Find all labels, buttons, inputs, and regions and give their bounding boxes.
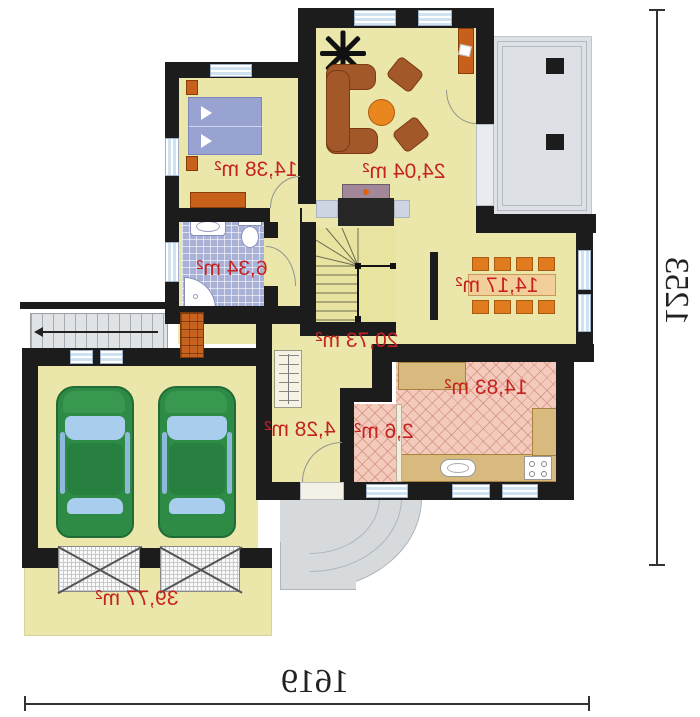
- terrace-door-gap: [476, 124, 494, 206]
- dining-chair: [516, 300, 533, 314]
- wall: [298, 8, 316, 204]
- area-label-pantry: 2,6 m²: [354, 420, 414, 444]
- window: [70, 350, 93, 364]
- area-label-entry: 4,28 m²: [264, 418, 335, 442]
- car: [56, 386, 134, 538]
- threshold: [316, 200, 338, 218]
- pillow: [201, 106, 212, 120]
- window: [165, 138, 179, 176]
- wall: [340, 388, 354, 492]
- toilet-bowl: [241, 226, 259, 248]
- bed: [188, 97, 262, 155]
- wall: [430, 252, 438, 320]
- wall: [140, 548, 160, 568]
- wall: [300, 222, 316, 336]
- stairs-direction-arrow: [40, 331, 158, 333]
- dimension-cap: [588, 696, 590, 711]
- area-label-bedroom: 14,38 m²: [215, 158, 298, 182]
- terrace-frame-inner: [502, 46, 582, 206]
- window: [100, 350, 123, 364]
- staircase: [316, 228, 396, 324]
- terrace-post: [546, 58, 564, 74]
- area-label-kitchen: 14,83 m²: [445, 376, 528, 400]
- fireplace-flame-icon: [363, 189, 369, 195]
- paper: [458, 44, 472, 57]
- wall: [256, 306, 272, 500]
- wall: [556, 356, 574, 488]
- threshold: [394, 200, 410, 218]
- wall: [22, 348, 38, 568]
- dimension-line-bottom: [25, 703, 590, 705]
- wall: [22, 348, 272, 366]
- car: [158, 386, 236, 538]
- window: [366, 484, 408, 498]
- door-gap: [270, 208, 300, 222]
- dining-chair: [538, 300, 555, 314]
- stove: [524, 456, 552, 480]
- kitchen-sink: [440, 459, 476, 477]
- wall: [238, 548, 272, 568]
- dimension-height: 1253: [657, 257, 695, 325]
- dresser: [190, 192, 246, 208]
- area-label-hall: 20,73 m²: [316, 329, 399, 353]
- dimension-cap: [649, 9, 665, 11]
- window: [165, 242, 179, 282]
- front-door-gap: [300, 482, 344, 500]
- dining-chair: [472, 257, 489, 271]
- wall: [298, 8, 494, 28]
- wardrobe: [274, 350, 302, 408]
- window: [578, 250, 591, 290]
- dining-chair: [494, 300, 511, 314]
- area-label-bath: 6,34 m²: [196, 257, 267, 281]
- chimney: [180, 312, 204, 358]
- window: [354, 10, 396, 26]
- wall: [165, 62, 179, 324]
- window: [578, 294, 591, 332]
- pillow: [201, 134, 212, 148]
- kitchen-counter: [532, 408, 558, 456]
- stairs-arrowhead: [34, 327, 43, 337]
- terrace-post: [546, 134, 564, 150]
- area-label-dining: 14,17 m²: [456, 274, 539, 298]
- dining-chair: [472, 300, 489, 314]
- window: [452, 484, 490, 498]
- dining-chair: [494, 257, 511, 271]
- wall: [22, 548, 58, 568]
- sofa: [326, 70, 350, 152]
- area-label-garage: 39,77 m²: [96, 587, 179, 611]
- floor-plan: 24,04 m² 14,38 m² 6,34 m² 14,17 m² 20,73…: [0, 0, 700, 717]
- garage-door: [58, 546, 140, 592]
- dining-chair: [516, 257, 533, 271]
- fireplace-hearth: [338, 198, 394, 226]
- garage-door: [160, 546, 240, 592]
- window: [418, 10, 452, 26]
- area-label-living: 24,04 m²: [363, 160, 446, 184]
- entrance-porch: [280, 498, 423, 591]
- coffee-table: [368, 99, 395, 126]
- dimension-width: 1619: [281, 663, 349, 701]
- nightstand: [186, 80, 198, 95]
- nightstand: [186, 156, 198, 171]
- window: [210, 64, 252, 77]
- wall: [20, 302, 170, 309]
- dimension-cap: [24, 696, 26, 711]
- dimension-cap: [649, 564, 665, 566]
- dining-chair: [538, 257, 555, 271]
- window: [502, 484, 538, 498]
